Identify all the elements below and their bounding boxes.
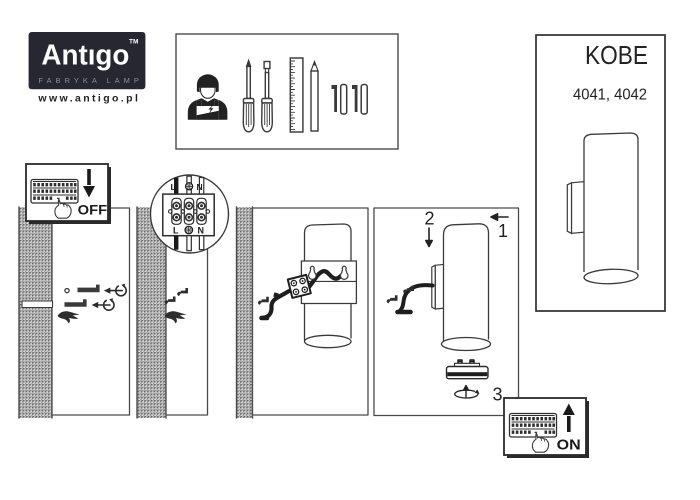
- svg-text:L: L: [171, 182, 176, 192]
- svg-text:1: 1: [498, 221, 508, 241]
- svg-text:OFF: OFF: [78, 202, 108, 218]
- svg-text:N: N: [198, 226, 205, 236]
- svg-text:2: 2: [424, 209, 434, 229]
- svg-text:3: 3: [492, 385, 502, 405]
- svg-text:L: L: [173, 226, 179, 236]
- svg-text:4041, 4042: 4041, 4042: [573, 87, 647, 104]
- svg-text:KOBE: KOBE: [585, 40, 648, 70]
- svg-text:www.antigo.pl: www.antigo.pl: [37, 93, 138, 105]
- svg-text:ON: ON: [557, 437, 581, 454]
- svg-text:N: N: [197, 182, 203, 192]
- svg-text:TM: TM: [129, 39, 138, 46]
- svg-text:Antıgo: Antıgo: [41, 40, 129, 72]
